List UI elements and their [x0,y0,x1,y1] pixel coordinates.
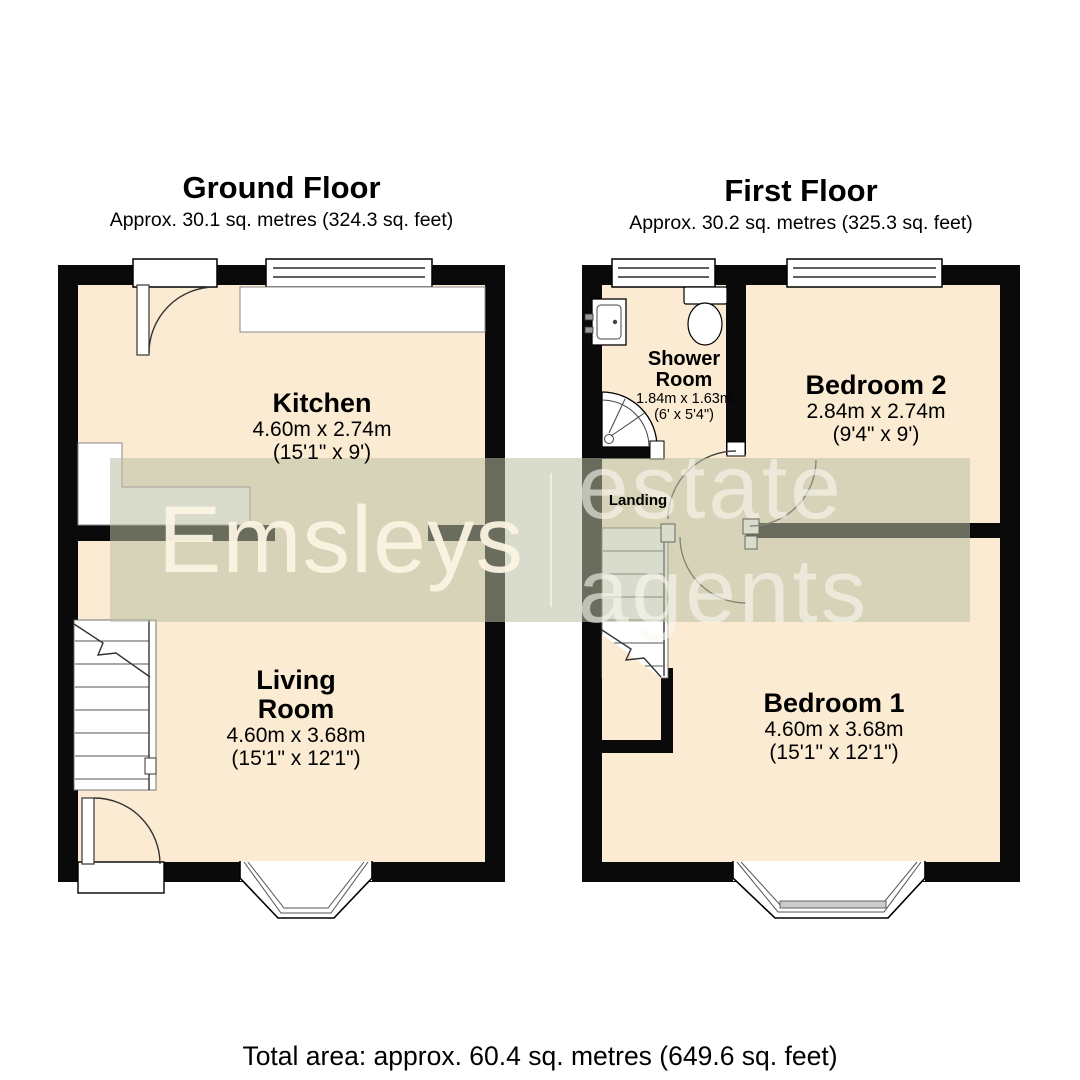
bedroom1-imperial: (15'1" x 12'1") [714,741,954,764]
bedroom2-imperial: (9'4" x 9') [756,423,996,446]
first-floor-title: First Floor [582,174,1020,207]
kitchen-label: Kitchen 4.60m x 2.74m (15'1" x 9') [212,389,432,464]
shower-room-metric: 1.84m x 1.63m [604,391,764,407]
watermark: Emsleys estate agents [110,458,970,622]
first-bay-window [733,861,925,918]
floorplan-page: Ground Floor Approx. 30.1 sq. metres (32… [0,0,1080,1080]
watermark-divider [550,473,552,607]
bedroom1-metric: 4.60m x 3.68m [714,718,954,741]
kitchen-imperial: (15'1" x 9') [212,441,432,464]
kitchen-metric: 4.60m x 2.74m [212,418,432,441]
shower-room-imperial: (6' x 5'4") [604,407,764,423]
living-room-imperial: (15'1" x 12'1") [186,747,406,770]
bedroom1-label: Bedroom 1 4.60m x 3.68m (15'1" x 12'1") [714,689,954,764]
kitchen-counter-top [240,287,485,332]
living-room-name: Living Room [221,666,371,724]
ground-floor-header: Ground Floor Approx. 30.1 sq. metres (32… [58,171,505,232]
total-area-text: Total area: approx. 60.4 sq. metres (649… [0,1041,1080,1072]
first-floor-header: First Floor Approx. 30.2 sq. metres (325… [582,174,1020,235]
bedroom2-name: Bedroom 2 [756,371,996,400]
living-room-metric: 4.60m x 3.68m [186,724,406,747]
ground-floor-title: Ground Floor [58,171,505,204]
shower-room-window [612,259,715,287]
ground-floor-area-text: Approx. 30.1 sq. metres (324.3 sq. feet) [58,209,505,232]
bedroom2-window [787,259,942,287]
first-floor-area-text: Approx. 30.2 sq. metres (325.3 sq. feet) [582,212,1020,235]
bedroom2-metric: 2.84m x 2.74m [756,400,996,423]
watermark-brand: Emsleys [158,486,524,595]
living-room-label: Living Room 4.60m x 3.68m (15'1" x 12'1"… [186,666,406,770]
shower-room-name: Shower Room [634,349,734,391]
shower-room-label: Shower Room 1.84m x 1.63m (6' x 5'4") [604,349,764,423]
kitchen-window [266,259,432,287]
watermark-suffix: estate agents [578,436,970,644]
bedroom2-label: Bedroom 2 2.84m x 2.74m (9'4" x 9') [756,371,996,446]
bedroom1-name: Bedroom 1 [714,689,954,718]
landing-label: Landing [598,492,678,509]
ground-stairs [74,620,156,790]
kitchen-name: Kitchen [212,389,432,418]
ground-bay-window [240,861,372,918]
